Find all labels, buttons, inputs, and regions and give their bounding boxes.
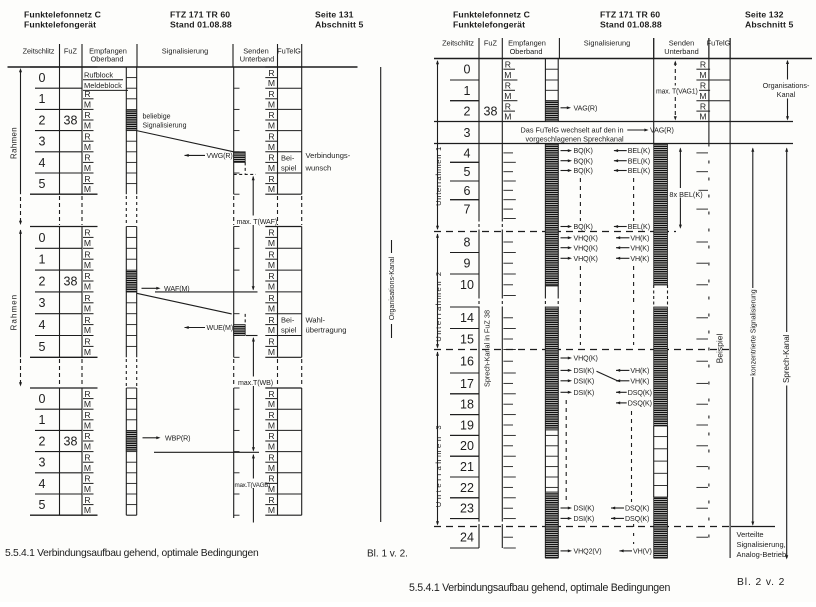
svg-text:FuZ: FuZ	[64, 47, 78, 56]
svg-text:Seite 131: Seite 131	[315, 10, 354, 20]
svg-text:M: M	[504, 70, 511, 80]
svg-text:BQ(K): BQ(K)	[574, 147, 593, 155]
svg-text:BEL(K): BEL(K)	[628, 157, 650, 165]
svg-text:R: R	[268, 249, 274, 259]
svg-text:Beispiel: Beispiel	[715, 334, 725, 364]
svg-text:Analog-Betrieb: Analog-Betrieb	[737, 550, 787, 559]
svg-text:Unterband: Unterband	[664, 47, 699, 56]
svg-text:Zeitschlitz: Zeitschlitz	[23, 47, 55, 56]
svg-text:R: R	[84, 153, 90, 163]
svg-text:R: R	[268, 110, 274, 120]
svg-text:R: R	[84, 337, 90, 347]
svg-text:M: M	[84, 184, 91, 194]
svg-text:0: 0	[39, 231, 46, 245]
svg-text:DSI(K): DSI(K)	[574, 389, 595, 397]
svg-text:Bei-: Bei-	[281, 316, 295, 325]
svg-text:5.5.4.1 Verbindungsaufbau gehe: 5.5.4.1 Verbindungsaufbau gehend, optima…	[409, 582, 671, 594]
svg-text:M: M	[268, 184, 275, 194]
svg-text:R: R	[84, 110, 90, 120]
svg-text:17: 17	[460, 377, 474, 391]
svg-text:R: R	[700, 101, 706, 111]
svg-text:R: R	[700, 60, 706, 70]
svg-text:M: M	[84, 325, 91, 335]
svg-text:M: M	[84, 238, 91, 248]
svg-text:R: R	[84, 271, 90, 281]
svg-text:M: M	[84, 347, 91, 357]
svg-text:Bei-: Bei-	[281, 154, 295, 163]
svg-text:3: 3	[39, 296, 46, 310]
svg-text:R: R	[84, 174, 90, 184]
svg-text:R: R	[505, 81, 511, 91]
svg-text:Bl. 1 v. 2.: Bl. 1 v. 2.	[367, 549, 408, 560]
svg-text:Verteilte: Verteilte	[737, 530, 764, 539]
svg-text:BEL(K): BEL(K)	[628, 167, 650, 175]
svg-text:23: 23	[460, 502, 474, 516]
svg-text:M: M	[268, 78, 275, 88]
svg-text:max. T(VAG1): max. T(VAG1)	[656, 89, 698, 96]
svg-text:R: R	[268, 293, 274, 303]
svg-text:Bl. 2 v. 2: Bl. 2 v. 2	[737, 577, 785, 588]
svg-text:BQ(K): BQ(K)	[574, 157, 593, 165]
svg-text:4: 4	[39, 477, 46, 491]
svg-text:VHQ(K): VHQ(K)	[574, 234, 598, 242]
svg-text:M: M	[84, 99, 91, 109]
svg-text:R: R	[268, 68, 274, 78]
svg-text:R: R	[268, 495, 274, 505]
svg-text:Rahmen: Rahmen	[10, 294, 19, 331]
svg-text:M: M	[268, 347, 275, 357]
svg-text:R: R	[268, 315, 274, 325]
svg-text:M: M	[268, 463, 275, 473]
svg-text:M: M	[84, 420, 91, 430]
svg-text:M: M	[268, 325, 275, 335]
svg-text:3: 3	[39, 456, 46, 470]
svg-text:Signalisierung,: Signalisierung,	[737, 540, 786, 549]
svg-text:R: R	[505, 60, 511, 70]
svg-text:max.T(VAGB): max.T(VAGB)	[235, 482, 271, 489]
svg-text:BQ(K): BQ(K)	[574, 167, 593, 175]
svg-text:Abschnitt 5: Abschnitt 5	[315, 20, 363, 30]
svg-text:spiel: spiel	[281, 164, 297, 173]
svg-text:Verbindungs-: Verbindungs-	[306, 151, 351, 160]
svg-text:Meldeblock: Meldeblock	[84, 81, 122, 90]
svg-text:VHQ(K): VHQ(K)	[574, 255, 598, 263]
svg-text:DSQ(K): DSQ(K)	[625, 515, 649, 523]
svg-text:5: 5	[464, 165, 471, 179]
svg-text:1: 1	[464, 84, 471, 98]
svg-text:Organisations-Kanal: Organisations-Kanal	[389, 256, 396, 320]
svg-text:M: M	[84, 442, 91, 452]
svg-text:FuTelG: FuTelG	[707, 39, 731, 48]
svg-text:5.5.4.1 Verbindungsaufbau geh: 5.5.4.1 Verbindungsaufbau gehend, optima…	[5, 548, 259, 559]
svg-text:VAG(R): VAG(R)	[650, 127, 674, 135]
svg-text:M: M	[268, 99, 275, 109]
svg-text:5: 5	[39, 177, 46, 191]
svg-text:2: 2	[39, 274, 46, 288]
svg-text:20: 20	[460, 439, 474, 453]
svg-text:FTZ 171 TR 60: FTZ 171 TR 60	[600, 10, 660, 20]
svg-text:VH(K): VH(K)	[630, 244, 649, 252]
svg-text:VH(K): VH(K)	[630, 377, 649, 385]
svg-text:Oberband: Oberband	[91, 55, 124, 64]
svg-text:M: M	[268, 121, 275, 131]
svg-text:0: 0	[464, 63, 471, 77]
svg-text:M: M	[268, 163, 275, 173]
svg-text:Wahl-: Wahl-	[306, 316, 326, 325]
svg-text:VAG(R): VAG(R)	[574, 104, 598, 112]
svg-text:15: 15	[460, 332, 474, 346]
svg-text:R: R	[84, 228, 90, 238]
svg-text:7: 7	[464, 203, 471, 217]
svg-text:Seite 132: Seite 132	[745, 10, 784, 20]
svg-text:Stand 01.08.88: Stand 01.08.88	[600, 20, 662, 30]
svg-text:R: R	[700, 81, 706, 91]
svg-text:DSI(K): DSI(K)	[574, 377, 595, 385]
svg-text:21: 21	[460, 460, 474, 474]
svg-text:R: R	[268, 131, 274, 141]
svg-text:M: M	[268, 303, 275, 313]
svg-text:1: 1	[39, 413, 46, 427]
svg-text:R: R	[268, 174, 274, 184]
svg-text:16: 16	[460, 355, 474, 369]
svg-text:19: 19	[460, 418, 474, 432]
svg-text:Unterband: Unterband	[240, 55, 275, 64]
svg-text:VH(K): VH(K)	[630, 367, 649, 375]
svg-text:DSQ(K): DSQ(K)	[628, 389, 652, 397]
svg-text:14: 14	[460, 311, 474, 325]
svg-text:38: 38	[484, 105, 498, 119]
svg-text:M: M	[84, 463, 91, 473]
svg-text:3: 3	[464, 126, 471, 140]
svg-text:M: M	[84, 505, 91, 515]
svg-text:M: M	[84, 142, 91, 152]
svg-text:R: R	[84, 389, 90, 399]
svg-text:wunsch: wunsch	[305, 164, 332, 173]
svg-text:BQ(K): BQ(K)	[574, 223, 593, 231]
svg-text:R: R	[84, 474, 90, 484]
svg-text:R: R	[268, 452, 274, 462]
svg-text:R: R	[84, 131, 90, 141]
svg-text:Sprech-Kanal: Sprech-Kanal	[782, 334, 791, 383]
svg-text:vorgeschlagenen Sprechkanal: vorgeschlagenen Sprechkanal	[526, 135, 625, 144]
svg-text:Rahmen: Rahmen	[10, 127, 19, 159]
svg-text:DSI(K): DSI(K)	[574, 505, 595, 513]
svg-text:Signalisierung: Signalisierung	[584, 39, 630, 48]
svg-text:R: R	[268, 271, 274, 281]
svg-text:Funktelefongerät: Funktelefongerät	[453, 20, 525, 30]
svg-text:beliebige: beliebige	[143, 114, 171, 121]
svg-text:24: 24	[460, 531, 474, 545]
svg-text:Stand 01.08.88: Stand 01.08.88	[170, 20, 232, 30]
svg-text:R: R	[268, 431, 274, 441]
svg-text:Unterrahmen 3: Unterrahmen 3	[434, 423, 443, 507]
svg-text:übertragung: übertragung	[306, 326, 347, 335]
svg-text:Funktelefonnetz C: Funktelefonnetz C	[24, 10, 102, 20]
svg-text:4: 4	[39, 156, 46, 170]
svg-text:M: M	[84, 303, 91, 313]
svg-text:VHQ(K): VHQ(K)	[574, 355, 598, 363]
svg-text:8x BEL(K): 8x BEL(K)	[669, 190, 702, 199]
svg-text:konzentrierte Signalisierung: konzentrierte Signalisierung	[750, 289, 757, 375]
svg-text:R: R	[268, 410, 274, 420]
svg-text:Das FuTelG wechselt auf den in: Das FuTelG wechselt auf den in	[521, 126, 624, 135]
svg-text:2: 2	[39, 113, 46, 127]
svg-text:Abschnitt 5: Abschnitt 5	[745, 20, 793, 30]
svg-text:R: R	[268, 389, 274, 399]
svg-text:9: 9	[464, 257, 471, 271]
svg-text:4: 4	[39, 318, 46, 332]
svg-text:5: 5	[39, 498, 46, 512]
svg-text:3: 3	[39, 135, 46, 149]
svg-text:DSQ(K): DSQ(K)	[628, 400, 652, 408]
svg-text:FuZ: FuZ	[484, 39, 498, 48]
svg-text:Oberband: Oberband	[510, 47, 543, 56]
svg-text:VH(K): VH(K)	[630, 234, 649, 242]
svg-text:18: 18	[460, 398, 474, 412]
svg-text:M: M	[84, 121, 91, 131]
svg-text:2: 2	[464, 105, 471, 119]
svg-text:4: 4	[464, 146, 471, 160]
svg-text:BEL(K): BEL(K)	[628, 147, 650, 155]
svg-text:2: 2	[39, 434, 46, 448]
svg-text:R: R	[268, 153, 274, 163]
svg-text:M: M	[268, 238, 275, 248]
svg-text:R: R	[268, 89, 274, 99]
svg-text:R: R	[268, 474, 274, 484]
svg-text:M: M	[84, 282, 91, 292]
svg-text:WBP(R): WBP(R)	[165, 434, 190, 442]
svg-text:spiel: spiel	[281, 326, 297, 335]
svg-text:Kanal: Kanal	[777, 90, 796, 99]
svg-text:DSI(K): DSI(K)	[574, 515, 595, 523]
svg-text:M: M	[268, 420, 275, 430]
svg-text:38: 38	[64, 434, 78, 448]
svg-text:M: M	[84, 399, 91, 409]
svg-text:Unterrahmen 1: Unterrahmen 1	[434, 146, 443, 206]
svg-text:R: R	[84, 410, 90, 420]
svg-text:M: M	[699, 91, 706, 101]
svg-text:FTZ 171 TR 60: FTZ 171 TR 60	[170, 10, 230, 20]
svg-text:Funktelefongerät: Funktelefongerät	[24, 20, 96, 30]
svg-text:Rufblock: Rufblock	[84, 71, 113, 80]
svg-text:6: 6	[464, 184, 471, 198]
svg-text:R: R	[84, 315, 90, 325]
svg-text:22: 22	[460, 481, 474, 495]
svg-text:R: R	[84, 249, 90, 259]
svg-text:VHQ(K): VHQ(K)	[574, 244, 598, 252]
svg-text:max. T(WAF): max. T(WAF)	[237, 218, 278, 226]
svg-text:Unterrahmen 2: Unterrahmen 2	[434, 270, 443, 341]
svg-text:VH(V): VH(V)	[633, 548, 652, 556]
svg-text:VWG(R): VWG(R)	[207, 152, 233, 160]
svg-text:M: M	[504, 91, 511, 101]
svg-text:M: M	[699, 112, 706, 122]
svg-text:M: M	[84, 484, 91, 494]
svg-text:M: M	[268, 442, 275, 452]
svg-text:10: 10	[460, 278, 474, 292]
svg-text:Funktelefonnetz C: Funktelefonnetz C	[453, 10, 531, 20]
svg-text:Organisations-: Organisations-	[763, 81, 810, 90]
svg-text:M: M	[268, 142, 275, 152]
svg-text:DSQ(K): DSQ(K)	[625, 505, 649, 513]
svg-text:Zeitschlitz: Zeitschlitz	[442, 39, 474, 48]
svg-text:Signalisierung: Signalisierung	[143, 122, 187, 129]
svg-text:8: 8	[464, 235, 471, 249]
svg-text:0: 0	[39, 392, 46, 406]
svg-text:VHQ2(V): VHQ2(V)	[574, 548, 602, 556]
svg-text:M: M	[268, 260, 275, 270]
svg-text:38: 38	[64, 113, 78, 127]
svg-text:M: M	[268, 484, 275, 494]
svg-text:M: M	[268, 399, 275, 409]
svg-text:DSI(K): DSI(K)	[574, 367, 595, 375]
svg-text:1: 1	[39, 92, 46, 106]
svg-text:R: R	[268, 337, 274, 347]
svg-text:R: R	[84, 452, 90, 462]
svg-text:Signalisierung: Signalisierung	[162, 47, 208, 56]
svg-text:M: M	[84, 163, 91, 173]
svg-text:0: 0	[39, 71, 46, 85]
svg-text:38: 38	[64, 274, 78, 288]
svg-text:FuTelG: FuTelG	[277, 47, 301, 56]
svg-text:R: R	[268, 228, 274, 238]
svg-text:R: R	[505, 101, 511, 111]
svg-text:WUE(M): WUE(M)	[207, 324, 234, 332]
svg-text:5: 5	[39, 340, 46, 354]
svg-text:R: R	[84, 431, 90, 441]
svg-text:M: M	[268, 505, 275, 515]
svg-text:R: R	[84, 495, 90, 505]
svg-text:BEL(K): BEL(K)	[628, 223, 650, 231]
svg-text:1: 1	[39, 253, 46, 267]
svg-text:M: M	[268, 282, 275, 292]
svg-text:VH(K): VH(K)	[630, 255, 649, 263]
svg-text:max.T(WB): max.T(WB)	[238, 379, 273, 387]
svg-text:M: M	[504, 112, 511, 122]
svg-text:Sprech-Kanal in FuZ 38: Sprech-Kanal in FuZ 38	[483, 310, 492, 387]
svg-text:M: M	[84, 260, 91, 270]
svg-text:R: R	[84, 293, 90, 303]
svg-text:M: M	[699, 70, 706, 80]
